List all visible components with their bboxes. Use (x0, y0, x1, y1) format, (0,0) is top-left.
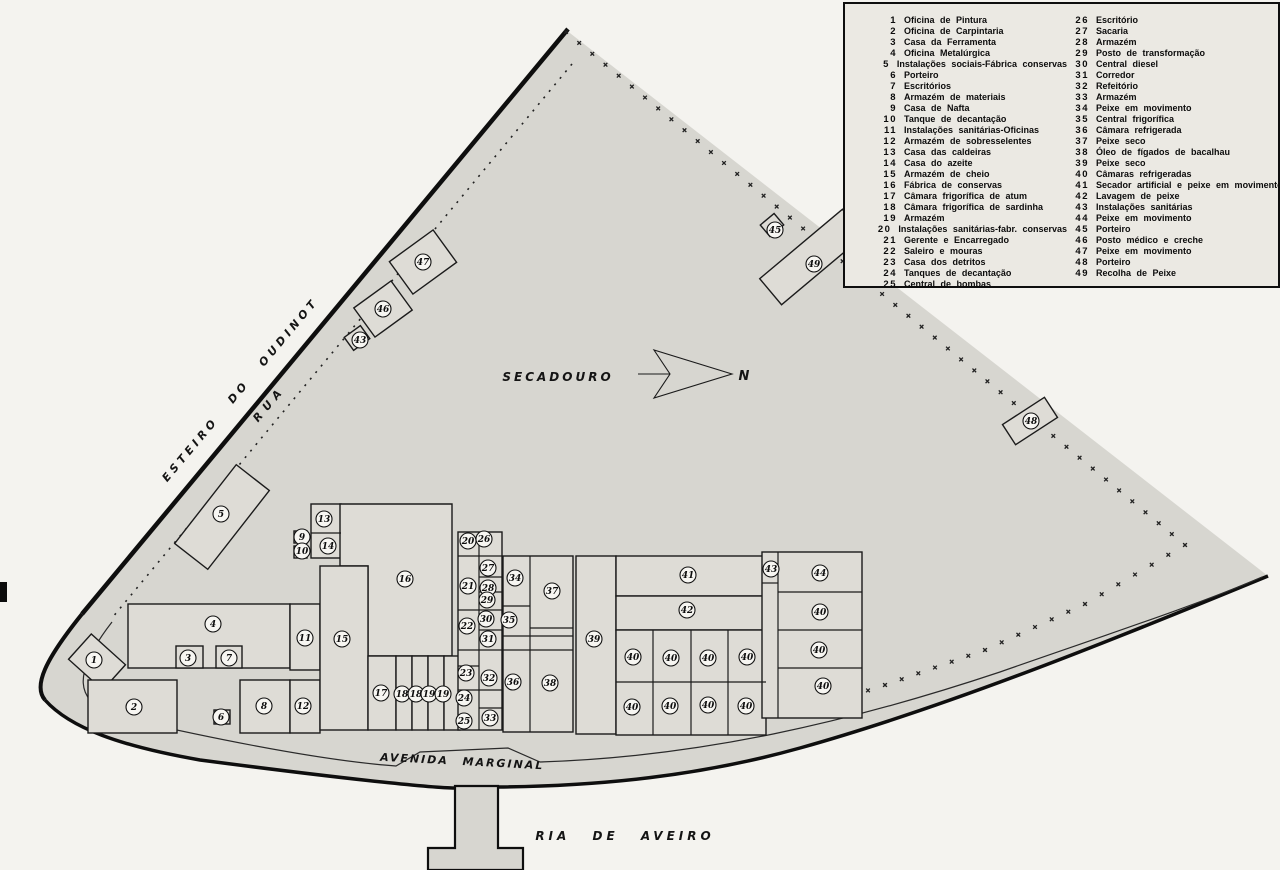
legend-item-label: Armazém (1096, 37, 1137, 48)
unit-number-marker: 30 (478, 611, 494, 627)
svg-text:40: 40 (814, 608, 827, 618)
unit-number-marker: 36 (505, 674, 521, 690)
svg-text:43: 43 (765, 565, 778, 575)
legend-item: 49Recolha de Peixe (1067, 268, 1280, 279)
legend-item: 42Lavagem de peixe (1067, 191, 1280, 202)
svg-text:15: 15 (336, 635, 349, 645)
legend-item-number: 43 (1067, 202, 1089, 213)
svg-text:23: 23 (459, 669, 473, 679)
svg-text:36: 36 (507, 678, 520, 688)
svg-text:40: 40 (817, 682, 830, 692)
legend-item: 21Gerente e Encarregado (875, 235, 1067, 246)
svg-text:30: 30 (480, 615, 493, 625)
unit-number-marker: 20 (460, 533, 476, 549)
svg-text:12: 12 (297, 702, 310, 712)
legend-item: 39Peixe seco (1067, 158, 1280, 169)
svg-text:42: 42 (681, 606, 694, 616)
svg-text:10: 10 (296, 547, 309, 557)
svg-text:48: 48 (1025, 417, 1038, 427)
legend-item: 33Armazém (1067, 92, 1280, 103)
unit-number-marker: 45 (767, 222, 783, 238)
legend-item-number: 25 (875, 279, 897, 290)
svg-text:2: 2 (130, 703, 137, 713)
legend-item: 4Oficina Metalúrgica (875, 48, 1067, 59)
legend-item: 14Casa do azeite (875, 158, 1067, 169)
unit-number-marker: 7 (221, 650, 237, 666)
svg-text:27: 27 (481, 564, 495, 574)
legend-item-label: Armazém (1096, 92, 1137, 103)
legend-item-number: 38 (1067, 147, 1089, 158)
unit-number-marker: 40 (738, 698, 754, 714)
unit-number-marker: 33 (482, 710, 498, 726)
building (320, 566, 368, 730)
unit-number-marker: 43 (763, 561, 779, 577)
legend-item-number: 41 (1067, 180, 1089, 191)
legend-item-label: Sacaria (1096, 26, 1128, 37)
legend-item: 24Tanques de decantação (875, 268, 1067, 279)
legend-item-number: 10 (875, 114, 897, 125)
legend-item-label: Instalações sanitárias (1096, 202, 1193, 213)
page-edge-tick (0, 582, 7, 602)
svg-text:49: 49 (808, 260, 821, 270)
legend-item: 1Oficina de Pintura (875, 15, 1067, 26)
legend-item-number: 9 (875, 103, 897, 114)
legend-item-number: 30 (1067, 59, 1089, 70)
svg-text:3: 3 (185, 654, 191, 664)
legend-item-number: 21 (875, 235, 897, 246)
legend-item-label: Tanque de decantação (904, 114, 1006, 125)
legend-item-label: Escritório (1096, 15, 1138, 26)
unit-number-marker: 37 (544, 583, 560, 599)
svg-text:40: 40 (702, 654, 715, 664)
legend-item-label: Saleiro e mouras (904, 246, 983, 257)
unit-number-marker: 29 (479, 592, 495, 608)
legend-item-label: Recolha de Peixe (1096, 268, 1176, 279)
pier (428, 786, 523, 870)
legend-item-label: Instalações sanitárias-Oficinas (904, 125, 1039, 136)
legend-item-number: 45 (1067, 224, 1089, 235)
legend-item-label: Lavagem de peixe (1096, 191, 1180, 202)
legend-item-label: Instalações sociais-Fábrica conservas (897, 59, 1067, 70)
legend-item-number: 18 (875, 202, 897, 213)
legend-item-label: Armazém de cheio (904, 169, 990, 180)
site-plan-page: 1234567891011121314151617181819192021222… (0, 0, 1280, 870)
legend-item: 2Oficina de Carpintaria (875, 26, 1067, 37)
unit-number-marker: 1 (86, 652, 102, 668)
legend-item: 6Porteiro (875, 70, 1067, 81)
unit-number-marker: 40 (662, 698, 678, 714)
legend-item: 27Sacaria (1067, 26, 1280, 37)
legend-item: 17Câmara frigorífica de atum (875, 191, 1067, 202)
legend-item-label: Armazém (904, 213, 945, 224)
unit-number-marker: 40 (812, 604, 828, 620)
unit-number-marker: 46 (375, 301, 391, 317)
legend-item: 18Câmara frigorífica de sardinha (875, 202, 1067, 213)
legend-item-label: Posto de transformação (1096, 48, 1205, 59)
legend-item-number: 27 (1067, 26, 1089, 37)
legend-item-number: 35 (1067, 114, 1089, 125)
svg-text:40: 40 (741, 653, 754, 663)
legend-item-label: Casa do azeite (904, 158, 973, 169)
unit-number-marker: 39 (586, 631, 602, 647)
svg-text:33: 33 (484, 714, 497, 724)
svg-text:6: 6 (218, 713, 225, 723)
legend-column-2: 26Escritório27Sacaria28Armazém29Posto de… (1067, 15, 1280, 279)
svg-text:35: 35 (503, 616, 516, 626)
legend-item-label: Posto médico e creche (1096, 235, 1203, 246)
legend-item: 11Instalações sanitárias-Oficinas (875, 125, 1067, 136)
legend-item: 44Peixe em movimento (1067, 213, 1280, 224)
svg-text:40: 40 (813, 646, 826, 656)
legend-item-number: 20 (875, 224, 891, 235)
ria-label: RIA DE AVEIRO (535, 829, 714, 843)
unit-number-marker: 17 (373, 685, 389, 701)
legend-item-number: 15 (875, 169, 897, 180)
legend-item-label: Câmara refrigerada (1096, 125, 1182, 136)
legend-item-number: 36 (1067, 125, 1089, 136)
svg-text:31: 31 (482, 635, 495, 645)
legend-item-number: 24 (875, 268, 897, 279)
unit-number-marker: 10 (294, 543, 310, 559)
legend-item-label: Tanques de decantação (904, 268, 1011, 279)
legend-item-number: 8 (875, 92, 897, 103)
secadouro-label: SECADOURO (502, 370, 613, 384)
legend-item-number: 1 (875, 15, 897, 26)
svg-text:21: 21 (461, 582, 475, 592)
legend-item: 15Armazém de cheio (875, 169, 1067, 180)
svg-text:19: 19 (437, 690, 450, 700)
legend-item-number: 14 (875, 158, 897, 169)
legend-item-number: 13 (875, 147, 897, 158)
legend-item-number: 17 (875, 191, 897, 202)
legend-item-number: 12 (875, 136, 897, 147)
unit-number-marker: 40 (739, 649, 755, 665)
legend-item-label: Porteiro (1096, 224, 1131, 235)
unit-number-marker: 44 (812, 565, 828, 581)
unit-number-marker: 25 (456, 713, 472, 729)
unit-number-marker: 47 (415, 254, 431, 270)
legend-item-number: 40 (1067, 169, 1089, 180)
building (128, 604, 290, 668)
svg-text:1: 1 (91, 656, 97, 666)
legend-item: 36Câmara refrigerada (1067, 125, 1280, 136)
legend-item: 22Saleiro e mouras (875, 246, 1067, 257)
legend-item-label: Armazém de materiais (904, 92, 1006, 103)
unit-number-marker: 23 (458, 665, 474, 681)
unit-number-marker: 49 (806, 256, 822, 272)
svg-text:11: 11 (299, 634, 312, 644)
unit-number-marker: 26 (476, 531, 492, 547)
svg-text:5: 5 (218, 510, 224, 520)
svg-text:29: 29 (480, 596, 494, 606)
svg-text:17: 17 (375, 689, 388, 699)
unit-number-marker: 42 (679, 602, 695, 618)
unit-number-marker: 16 (397, 571, 413, 587)
legend-item: 8Armazém de materiais (875, 92, 1067, 103)
legend-item-number: 6 (875, 70, 897, 81)
building (762, 552, 862, 718)
legend-column-1: 1Oficina de Pintura2Oficina de Carpintar… (875, 15, 1067, 290)
unit-number-marker: 8 (256, 698, 272, 714)
legend-item: 20Instalações sanitárias-fabr. conservas (875, 224, 1067, 235)
svg-text:8: 8 (261, 702, 268, 712)
unit-number-marker: 6 (213, 709, 229, 725)
legend-item: 47Peixe em movimento (1067, 246, 1280, 257)
legend-item-number: 44 (1067, 213, 1089, 224)
legend-item: 23Casa dos detritos (875, 257, 1067, 268)
legend-item: 32Refeitório (1067, 81, 1280, 92)
svg-text:7: 7 (226, 654, 233, 664)
legend-item-number: 49 (1067, 268, 1089, 279)
legend-item-number: 42 (1067, 191, 1089, 202)
legend-item-number: 26 (1067, 15, 1089, 26)
legend-item: 48Porteiro (1067, 257, 1280, 268)
unit-number-marker: 40 (700, 697, 716, 713)
legend-item-label: Central de bombas (904, 279, 991, 290)
svg-text:39: 39 (588, 635, 601, 645)
unit-number-marker: 40 (700, 650, 716, 666)
legend-item: 3Casa da Ferramenta (875, 37, 1067, 48)
unit-number-marker: 27 (480, 560, 496, 576)
unit-number-marker: 40 (815, 678, 831, 694)
svg-text:32: 32 (483, 674, 496, 684)
unit-number-marker: 21 (460, 578, 476, 594)
legend-item: 7Escritórios (875, 81, 1067, 92)
legend-item: 12Armazém de sobresselentes (875, 136, 1067, 147)
legend-item-number: 5 (875, 59, 890, 70)
legend-item-number: 7 (875, 81, 897, 92)
legend-item: 46Posto médico e creche (1067, 235, 1280, 246)
legend-item-label: Peixe seco (1096, 158, 1146, 169)
svg-text:19: 19 (423, 690, 436, 700)
svg-text:47: 47 (417, 258, 430, 268)
svg-text:24: 24 (457, 694, 471, 704)
svg-text:20: 20 (461, 537, 475, 547)
svg-text:40: 40 (664, 702, 677, 712)
legend-item-label: Peixe seco (1096, 136, 1146, 147)
svg-text:46: 46 (377, 305, 390, 315)
legend-item-label: Porteiro (1096, 257, 1131, 268)
unit-number-marker: 2 (126, 699, 142, 715)
legend-item-label: Casa das caldeiras (904, 147, 991, 158)
svg-text:16: 16 (399, 575, 412, 585)
unit-number-marker: 40 (625, 649, 641, 665)
legend-item: 41Secador artificial e peixe em moviment… (1067, 180, 1280, 191)
unit-number-marker: 11 (297, 630, 313, 646)
legend-item-label: Câmara frigorífica de atum (904, 191, 1027, 202)
legend-item-label: Porteiro (904, 70, 939, 81)
svg-text:26: 26 (477, 535, 491, 545)
svg-text:40: 40 (702, 701, 715, 711)
legend-item: 5Instalações sociais-Fábrica conservas (875, 59, 1067, 70)
svg-text:41: 41 (682, 571, 695, 581)
unit-number-marker: 14 (320, 538, 336, 554)
svg-text:14: 14 (322, 542, 335, 552)
legend-item: 37Peixe seco (1067, 136, 1280, 147)
legend-item-label: Oficina de Carpintaria (904, 26, 1004, 37)
unit-number-marker: 38 (542, 675, 558, 691)
unit-number-marker: 40 (811, 642, 827, 658)
legend-item-number: 28 (1067, 37, 1089, 48)
unit-number-marker: 41 (680, 567, 696, 583)
legend-item-label: Casa da Ferramenta (904, 37, 996, 48)
legend-item-number: 2 (875, 26, 897, 37)
legend-item: 38Óleo de fígados de bacalhau (1067, 147, 1280, 158)
svg-text:43: 43 (354, 336, 367, 346)
svg-text:38: 38 (544, 679, 557, 689)
legend-item-number: 32 (1067, 81, 1089, 92)
legend-item-label: Central frigorífica (1096, 114, 1174, 125)
legend-item-label: Oficina de Pintura (904, 15, 987, 26)
unit-number-marker: 15 (334, 631, 350, 647)
legend-item-label: Central diesel (1096, 59, 1158, 70)
legend-item-label: Armazém de sobresselentes (904, 136, 1032, 147)
legend-item-label: Fábrica de conservas (904, 180, 1002, 191)
legend-item-number: 46 (1067, 235, 1089, 246)
svg-text:34: 34 (509, 574, 522, 584)
legend-item-number: 16 (875, 180, 897, 191)
legend-item-number: 3 (875, 37, 897, 48)
legend-item-number: 34 (1067, 103, 1089, 114)
legend-item: 9Casa de Nafta (875, 103, 1067, 114)
legend-item-label: Oficina Metalúrgica (904, 48, 990, 59)
legend-item: 43Instalações sanitárias (1067, 202, 1280, 213)
legend-item: 10Tanque de decantação (875, 114, 1067, 125)
legend-item-label: Peixe em movimento (1096, 213, 1192, 224)
legend-item: 19Armazém (875, 213, 1067, 224)
legend-item: 16Fábrica de conservas (875, 180, 1067, 191)
legend-item-number: 22 (875, 246, 897, 257)
legend-item-number: 47 (1067, 246, 1089, 257)
legend-item-label: Secador artificial e peixe em movimento (1096, 180, 1280, 191)
legend-item-label: Óleo de fígados de bacalhau (1096, 147, 1230, 158)
legend-item: 40Câmaras refrigeradas (1067, 169, 1280, 180)
legend-item-number: 31 (1067, 70, 1089, 81)
legend-item: 13Casa das caldeiras (875, 147, 1067, 158)
legend-item-number: 19 (875, 213, 897, 224)
legend-item-number: 37 (1067, 136, 1089, 147)
legend-item-number: 33 (1067, 92, 1089, 103)
legend-item-label: Câmaras refrigeradas (1096, 169, 1192, 180)
unit-number-marker: 4 (205, 616, 221, 632)
legend-item: 25Central de bombas (875, 279, 1067, 290)
legend-item: 45Porteiro (1067, 224, 1280, 235)
legend-item: 31Corredor (1067, 70, 1280, 81)
legend-item-label: Casa dos detritos (904, 257, 986, 268)
svg-text:25: 25 (457, 717, 471, 727)
svg-text:45: 45 (769, 226, 782, 236)
legend-item: 29Posto de transformação (1067, 48, 1280, 59)
legend-item-number: 29 (1067, 48, 1089, 59)
legend-item-number: 48 (1067, 257, 1089, 268)
legend-item-label: Corredor (1096, 70, 1135, 81)
legend-item: 35Central frigorífica (1067, 114, 1280, 125)
north-label: N (739, 369, 750, 384)
svg-text:44: 44 (814, 569, 827, 579)
unit-number-marker: 48 (1023, 413, 1039, 429)
unit-number-marker: 5 (213, 506, 229, 522)
unit-number-marker: 40 (624, 699, 640, 715)
unit-number-marker: 24 (456, 690, 472, 706)
unit-number-marker: 35 (501, 612, 517, 628)
legend-item-number: 11 (875, 125, 897, 136)
unit-number-marker: 12 (295, 698, 311, 714)
legend-item-label: Câmara frigorífica de sardinha (904, 202, 1043, 213)
legend-item: 28Armazém (1067, 37, 1280, 48)
unit-number-marker: 40 (663, 650, 679, 666)
svg-text:40: 40 (665, 654, 678, 664)
legend-item-number: 23 (875, 257, 897, 268)
unit-number-marker: 3 (180, 650, 196, 666)
unit-number-marker: 19 (435, 686, 451, 702)
svg-text:40: 40 (740, 702, 753, 712)
svg-text:4: 4 (210, 620, 216, 630)
unit-number-marker: 32 (481, 670, 497, 686)
legend-box: 1Oficina de Pintura2Oficina de Carpintar… (843, 2, 1280, 288)
legend-item-label: Peixe em movimento (1096, 246, 1192, 257)
legend-item-label: Instalações sanitárias-fabr. conservas (898, 224, 1067, 235)
svg-text:18: 18 (396, 690, 409, 700)
svg-text:40: 40 (626, 703, 639, 713)
legend-item-label: Gerente e Encarregado (904, 235, 1009, 246)
legend-item: 34Peixe em movimento (1067, 103, 1280, 114)
legend-item-number: 39 (1067, 158, 1089, 169)
legend-item-label: Refeitório (1096, 81, 1138, 92)
svg-text:22: 22 (460, 622, 474, 632)
svg-text:40: 40 (627, 653, 640, 663)
unit-number-marker: 22 (459, 618, 475, 634)
svg-text:37: 37 (546, 587, 559, 597)
unit-number-marker: 13 (316, 511, 332, 527)
legend-item-number: 4 (875, 48, 897, 59)
legend-item-label: Casa de Nafta (904, 103, 970, 114)
unit-number-marker: 43 (352, 332, 368, 348)
legend-item: 26Escritório (1067, 15, 1280, 26)
legend-item-label: Peixe em movimento (1096, 103, 1192, 114)
unit-number-marker: 34 (507, 570, 523, 586)
legend-item: 30Central diesel (1067, 59, 1280, 70)
unit-number-marker: 31 (480, 631, 496, 647)
svg-text:9: 9 (299, 533, 306, 543)
legend-item-label: Escritórios (904, 81, 951, 92)
svg-text:13: 13 (318, 515, 331, 525)
